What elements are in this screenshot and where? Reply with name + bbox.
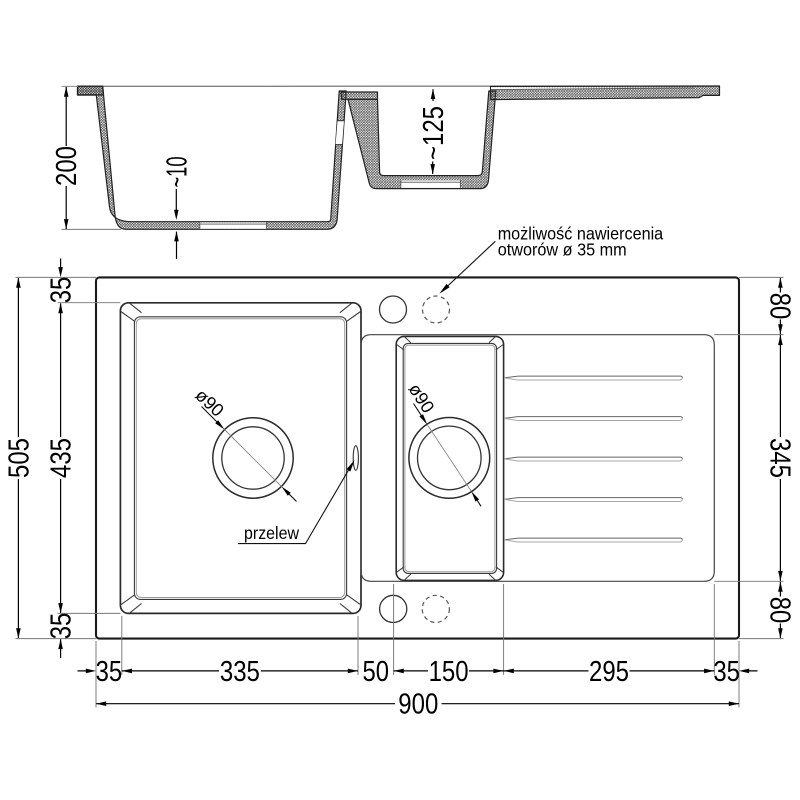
svg-text:przelew: przelew (244, 523, 299, 543)
svg-text:35: 35 (713, 656, 740, 688)
svg-text:otworów ø 35 mm: otworów ø 35 mm (498, 240, 627, 260)
svg-text:35: 35 (46, 613, 78, 640)
svg-text:80: 80 (763, 293, 795, 320)
svg-text:~10: ~10 (161, 157, 193, 188)
svg-text:295: 295 (589, 656, 629, 688)
svg-text:50: 50 (363, 656, 390, 688)
svg-text:ø90: ø90 (405, 380, 439, 417)
svg-text:35: 35 (46, 277, 78, 304)
svg-text:335: 335 (220, 656, 260, 688)
svg-text:ø90: ø90 (191, 385, 227, 421)
svg-text:~125: ~125 (418, 106, 450, 160)
svg-text:505: 505 (3, 438, 35, 478)
svg-text:345: 345 (763, 438, 795, 478)
svg-text:150: 150 (429, 656, 469, 688)
svg-text:35: 35 (96, 656, 123, 688)
svg-text:435: 435 (46, 438, 78, 478)
svg-text:80: 80 (763, 597, 795, 624)
svg-text:200: 200 (51, 146, 83, 186)
svg-text:900: 900 (398, 689, 438, 721)
